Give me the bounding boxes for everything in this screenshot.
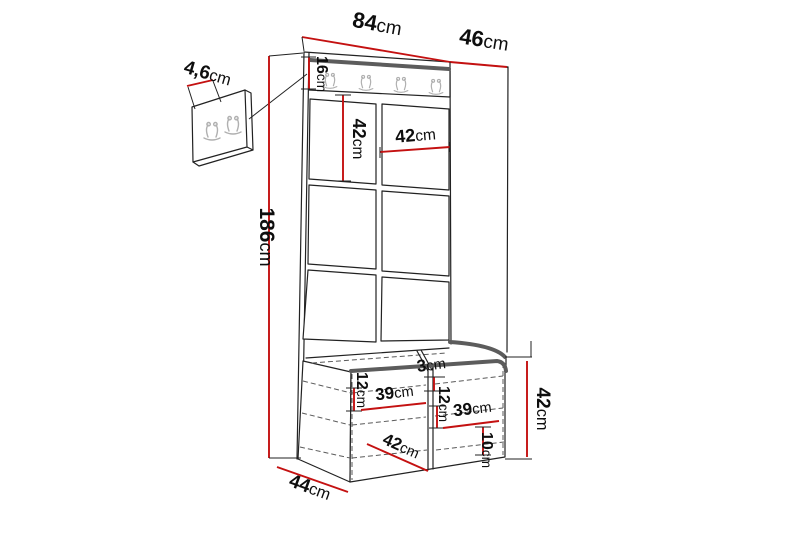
- upholstered-panel: [308, 185, 376, 269]
- detail-leader-line: [249, 74, 307, 119]
- dim-label-total-height: 186cm: [255, 207, 278, 266]
- panel-right-front-edge: [450, 62, 451, 344]
- dim-label-bench-height: 42cm: [532, 388, 553, 431]
- dim-label-panel-height: 42cm: [349, 119, 369, 160]
- diagram-svg: 84cm 46cm 4,6cm 16cm 186cm 42cm 42cm 3cm…: [0, 0, 800, 533]
- dim-label-bottom-clearance: 10cm: [478, 432, 495, 468]
- dim-label-top-depth: 46cm: [458, 23, 511, 55]
- dim-line-top-depth: [450, 62, 507, 67]
- upholstered-panel: [303, 270, 376, 342]
- dim-label-bench-depth: 44cm: [286, 471, 334, 505]
- dim-label-left-compartment-height: 12cm: [353, 372, 370, 408]
- dim-label-rail-height: 16cm: [313, 56, 330, 92]
- furniture-dimension-diagram: 84cm 46cm 4,6cm 16cm 186cm 42cm 42cm 3cm…: [0, 0, 800, 533]
- dim-label-right-compartment-height: 12cm: [435, 386, 452, 422]
- bench-back-right-trim: [450, 342, 505, 357]
- detail-panel: [192, 74, 307, 166]
- upholstered-panel: [382, 191, 449, 276]
- dim-label-seat-thickness: 3cm: [416, 353, 447, 376]
- seat-back-edge: [306, 348, 449, 358]
- panel-right-back-edge: [507, 67, 508, 352]
- upholstered-panel: [381, 277, 449, 341]
- bench-left-side: [298, 361, 351, 482]
- dim-label-top-width: 84cm: [351, 7, 404, 40]
